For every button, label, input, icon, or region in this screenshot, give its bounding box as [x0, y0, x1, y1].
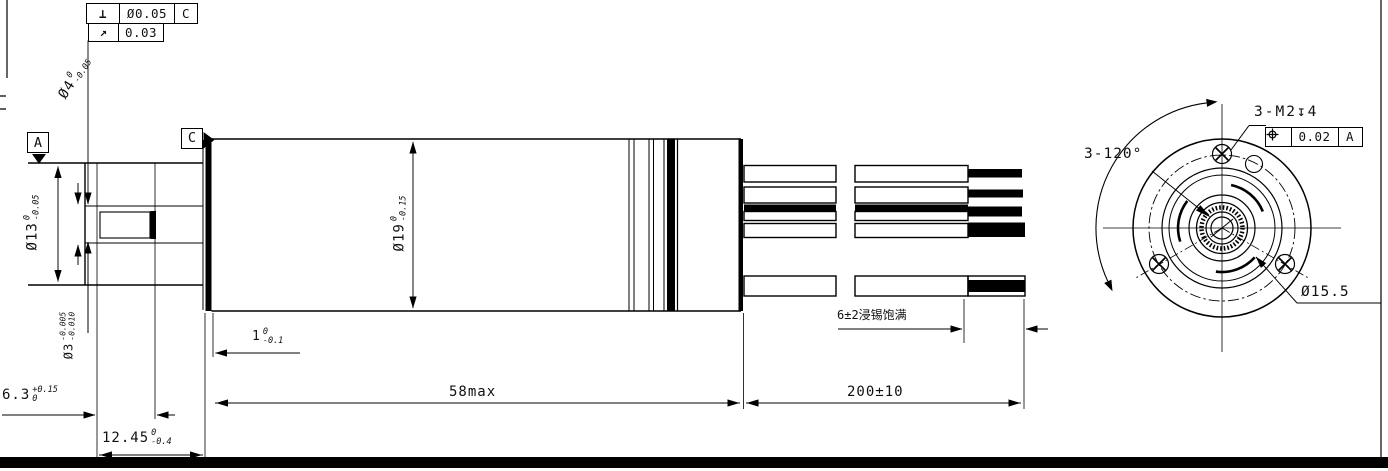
pin-hole [1246, 156, 1263, 173]
position-value: 0.02 [1292, 128, 1339, 146]
perpendicularity-value: Ø0.05 [120, 4, 175, 23]
perpendicularity-tolerance-frame: ⊥ Ø0.05 C [86, 3, 198, 24]
side-view-motor-body [203, 139, 743, 311]
label-tapped-holes: 3-M2↧4 [1254, 104, 1318, 120]
dimension-lines [2, 142, 1048, 461]
dim-shoulder-length: 6.3 +0.150 [2, 386, 58, 403]
note-tinned-length: 6±2浸锡饱满 [837, 306, 907, 323]
side-view-front-housing [28, 163, 203, 461]
tapped-hole-lower-right [1276, 255, 1295, 274]
lead-wires [744, 166, 1025, 297]
dim-shaft-length: 12.45 0-0.4 [102, 429, 172, 446]
dim-body-length: 58max [449, 384, 496, 400]
dim-bolt-circle-diameter: Ø15.5 [1301, 284, 1350, 300]
dim-pinion-diameter: Ø3 -0.005-0.010 [60, 293, 77, 379]
datum-leaders [33, 41, 214, 205]
datum-a-label: A [27, 132, 49, 153]
position-datum: A [1339, 128, 1362, 146]
dim-body-diameter: Ø19 0-0.15 [391, 174, 408, 274]
runout-value: 0.03 [119, 24, 163, 41]
perpendicularity-datum: C [175, 4, 197, 23]
dim-lip-length: 1 0-0.1 [252, 328, 283, 345]
position-tolerance-icon [1266, 128, 1292, 146]
engineering-drawing-canvas: ⊥ Ø0.05 C ↗ 0.03 A C Ø4 0-0.05 Ø13 0-0.0… [0, 0, 1388, 471]
dim-lead-length: 200±10 [847, 384, 904, 400]
sheet-bottom-bar [0, 457, 1388, 468]
position-tolerance-frame: 0.02 A [1265, 127, 1363, 147]
angle-arc [1096, 103, 1207, 281]
drawing-linework [0, 0, 1388, 471]
dim-front-housing-diameter: Ø13 0-0.05 [24, 175, 41, 271]
label-hole-angle: 3-120° [1084, 146, 1142, 162]
datum-c-label: C [181, 128, 203, 149]
perpendicularity-icon: ⊥ [87, 4, 120, 23]
tapped-hole-lower-left [1150, 255, 1169, 274]
